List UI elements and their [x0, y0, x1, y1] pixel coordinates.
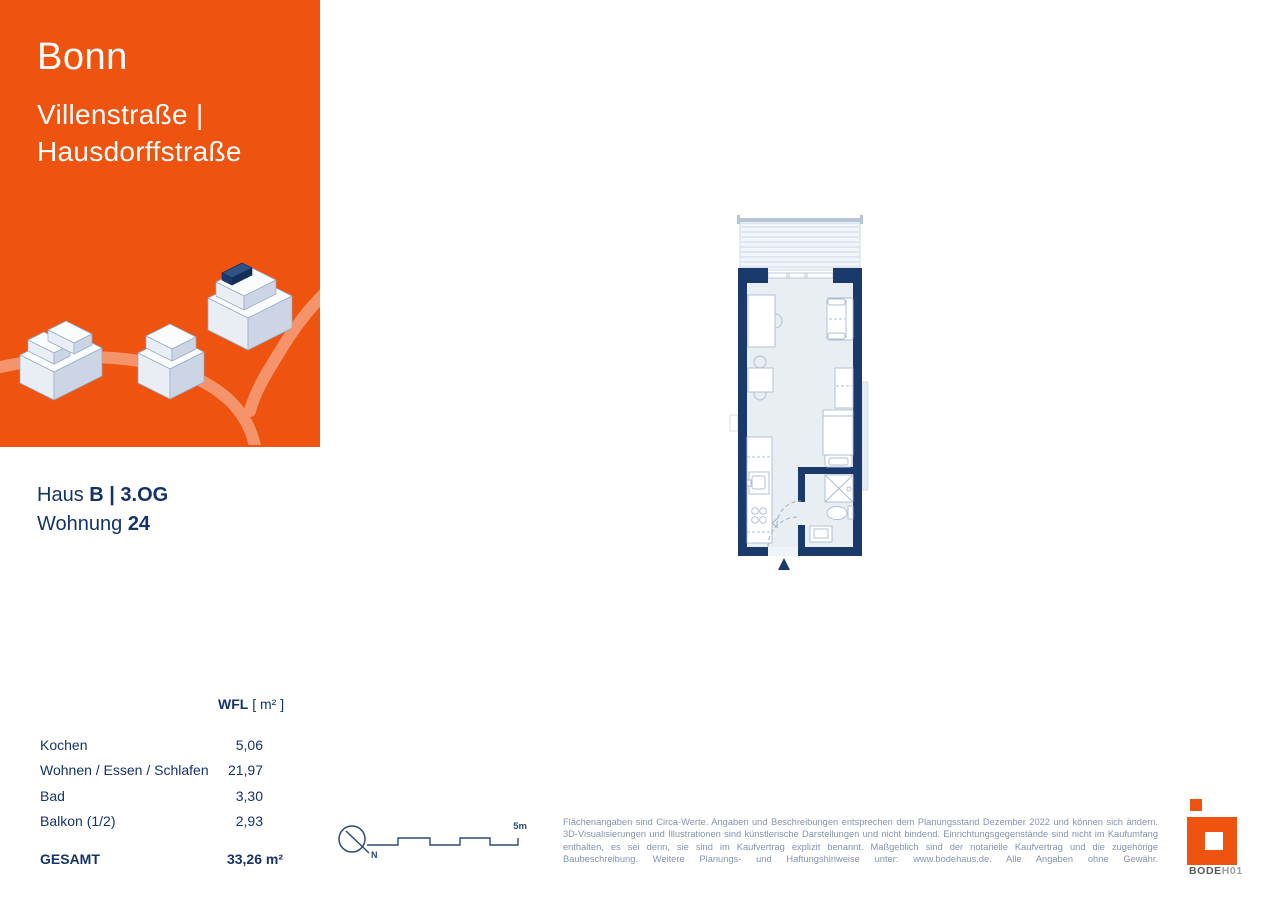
street-line-1: Villenstraße | — [37, 96, 242, 133]
building-haus-b — [208, 266, 292, 350]
dining-table — [748, 368, 773, 392]
brand-bold: BODE — [1189, 865, 1222, 877]
unit-info: Haus B | 3.OG Wohnung 24 — [37, 481, 168, 539]
balcony — [737, 215, 863, 270]
logo-dot-icon — [1190, 799, 1202, 811]
page-title: Bonn — [37, 36, 128, 79]
shower — [825, 475, 853, 502]
table-row: Balkon (1/2) 2,93 — [40, 813, 263, 829]
kitchen-counter — [747, 437, 772, 543]
entrance-arrow-icon — [778, 558, 790, 570]
building-middle — [138, 324, 204, 399]
table-total-row: GESAMT 33,26 m² — [40, 851, 283, 867]
company-logo: BODEH01 — [1186, 799, 1246, 881]
row-label: Wohnen / Essen / Schlafen — [40, 762, 209, 778]
sofa — [827, 298, 853, 340]
entrance-threshold — [768, 547, 798, 556]
brand-name: BODEH01 — [1189, 865, 1243, 877]
row-value: 3,30 — [236, 788, 263, 804]
exterior-stub — [730, 415, 738, 431]
logo-square-hole — [1205, 832, 1223, 850]
total-label: GESAMT — [40, 851, 100, 867]
table-header-wfl: WFL — [218, 696, 248, 712]
row-label: Balkon (1/2) — [40, 813, 115, 829]
street-line-2: Hausdorffstraße — [37, 133, 242, 170]
brochure-page: Bonn Villenstraße | Hausdorffstraße — [0, 0, 1280, 905]
washbasin — [810, 526, 832, 542]
scale-bar-label: 5m — [513, 821, 527, 832]
row-value: 5,06 — [236, 737, 263, 753]
table-header-unit: [ m² ] — [248, 696, 284, 712]
balcony-window — [768, 273, 833, 278]
wohnung-label: Wohnung — [37, 513, 128, 535]
haus-label: Haus — [37, 484, 89, 506]
haus-value: B | 3.OG — [89, 484, 168, 506]
dining-chair-top — [754, 356, 766, 368]
table-row: Wohnen / Essen / Schlafen 21,97 — [40, 762, 263, 778]
brand-light: H01 — [1222, 865, 1243, 877]
street-subtitle: Villenstraße | Hausdorffstraße — [37, 96, 242, 170]
row-label: Bad — [40, 788, 65, 804]
site-plan-illustration — [0, 233, 320, 445]
building-left — [20, 321, 102, 400]
table-header: WFL [ m² ] — [218, 696, 284, 712]
row-label: Kochen — [40, 737, 87, 753]
total-value: 33,26 m² — [227, 851, 283, 867]
bed — [823, 410, 853, 455]
desk — [748, 295, 775, 347]
header-panel: Bonn Villenstraße | Hausdorffstraße — [0, 0, 320, 447]
scale-bar: 5m — [355, 812, 535, 854]
floor-plan — [725, 210, 875, 575]
toilet — [827, 506, 853, 520]
disclaimer-text: Flächenangaben sind Circa-Werte. Angaben… — [563, 816, 1158, 865]
unit-haus-line: Haus B | 3.OG — [37, 481, 168, 510]
wohnung-value: 24 — [128, 513, 150, 535]
table-row: Kochen 5,06 — [40, 737, 263, 753]
row-value: 2,93 — [236, 813, 263, 829]
table-row: Bad 3,30 — [40, 788, 263, 804]
neighbour-wall — [862, 382, 868, 490]
logo-square-icon — [1187, 817, 1237, 865]
row-value: 21,97 — [228, 762, 263, 778]
wardrobe — [835, 368, 853, 408]
unit-wohnung-line: Wohnung 24 — [37, 510, 168, 539]
